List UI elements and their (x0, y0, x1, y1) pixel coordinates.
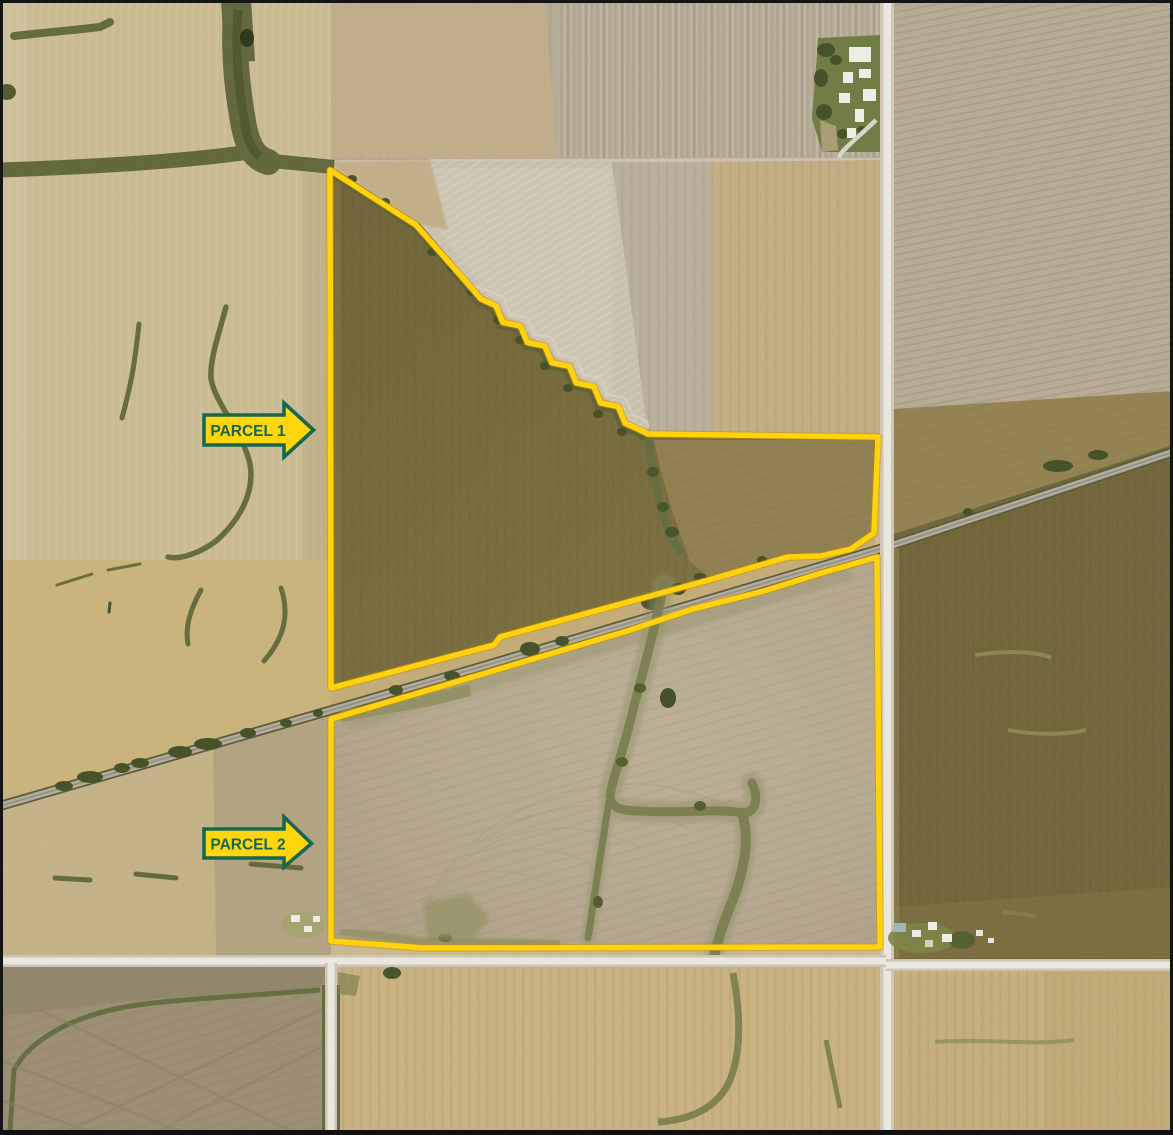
svg-text:PARCEL 2: PARCEL 2 (210, 836, 285, 853)
svg-text:PARCEL 1: PARCEL 1 (210, 423, 286, 440)
